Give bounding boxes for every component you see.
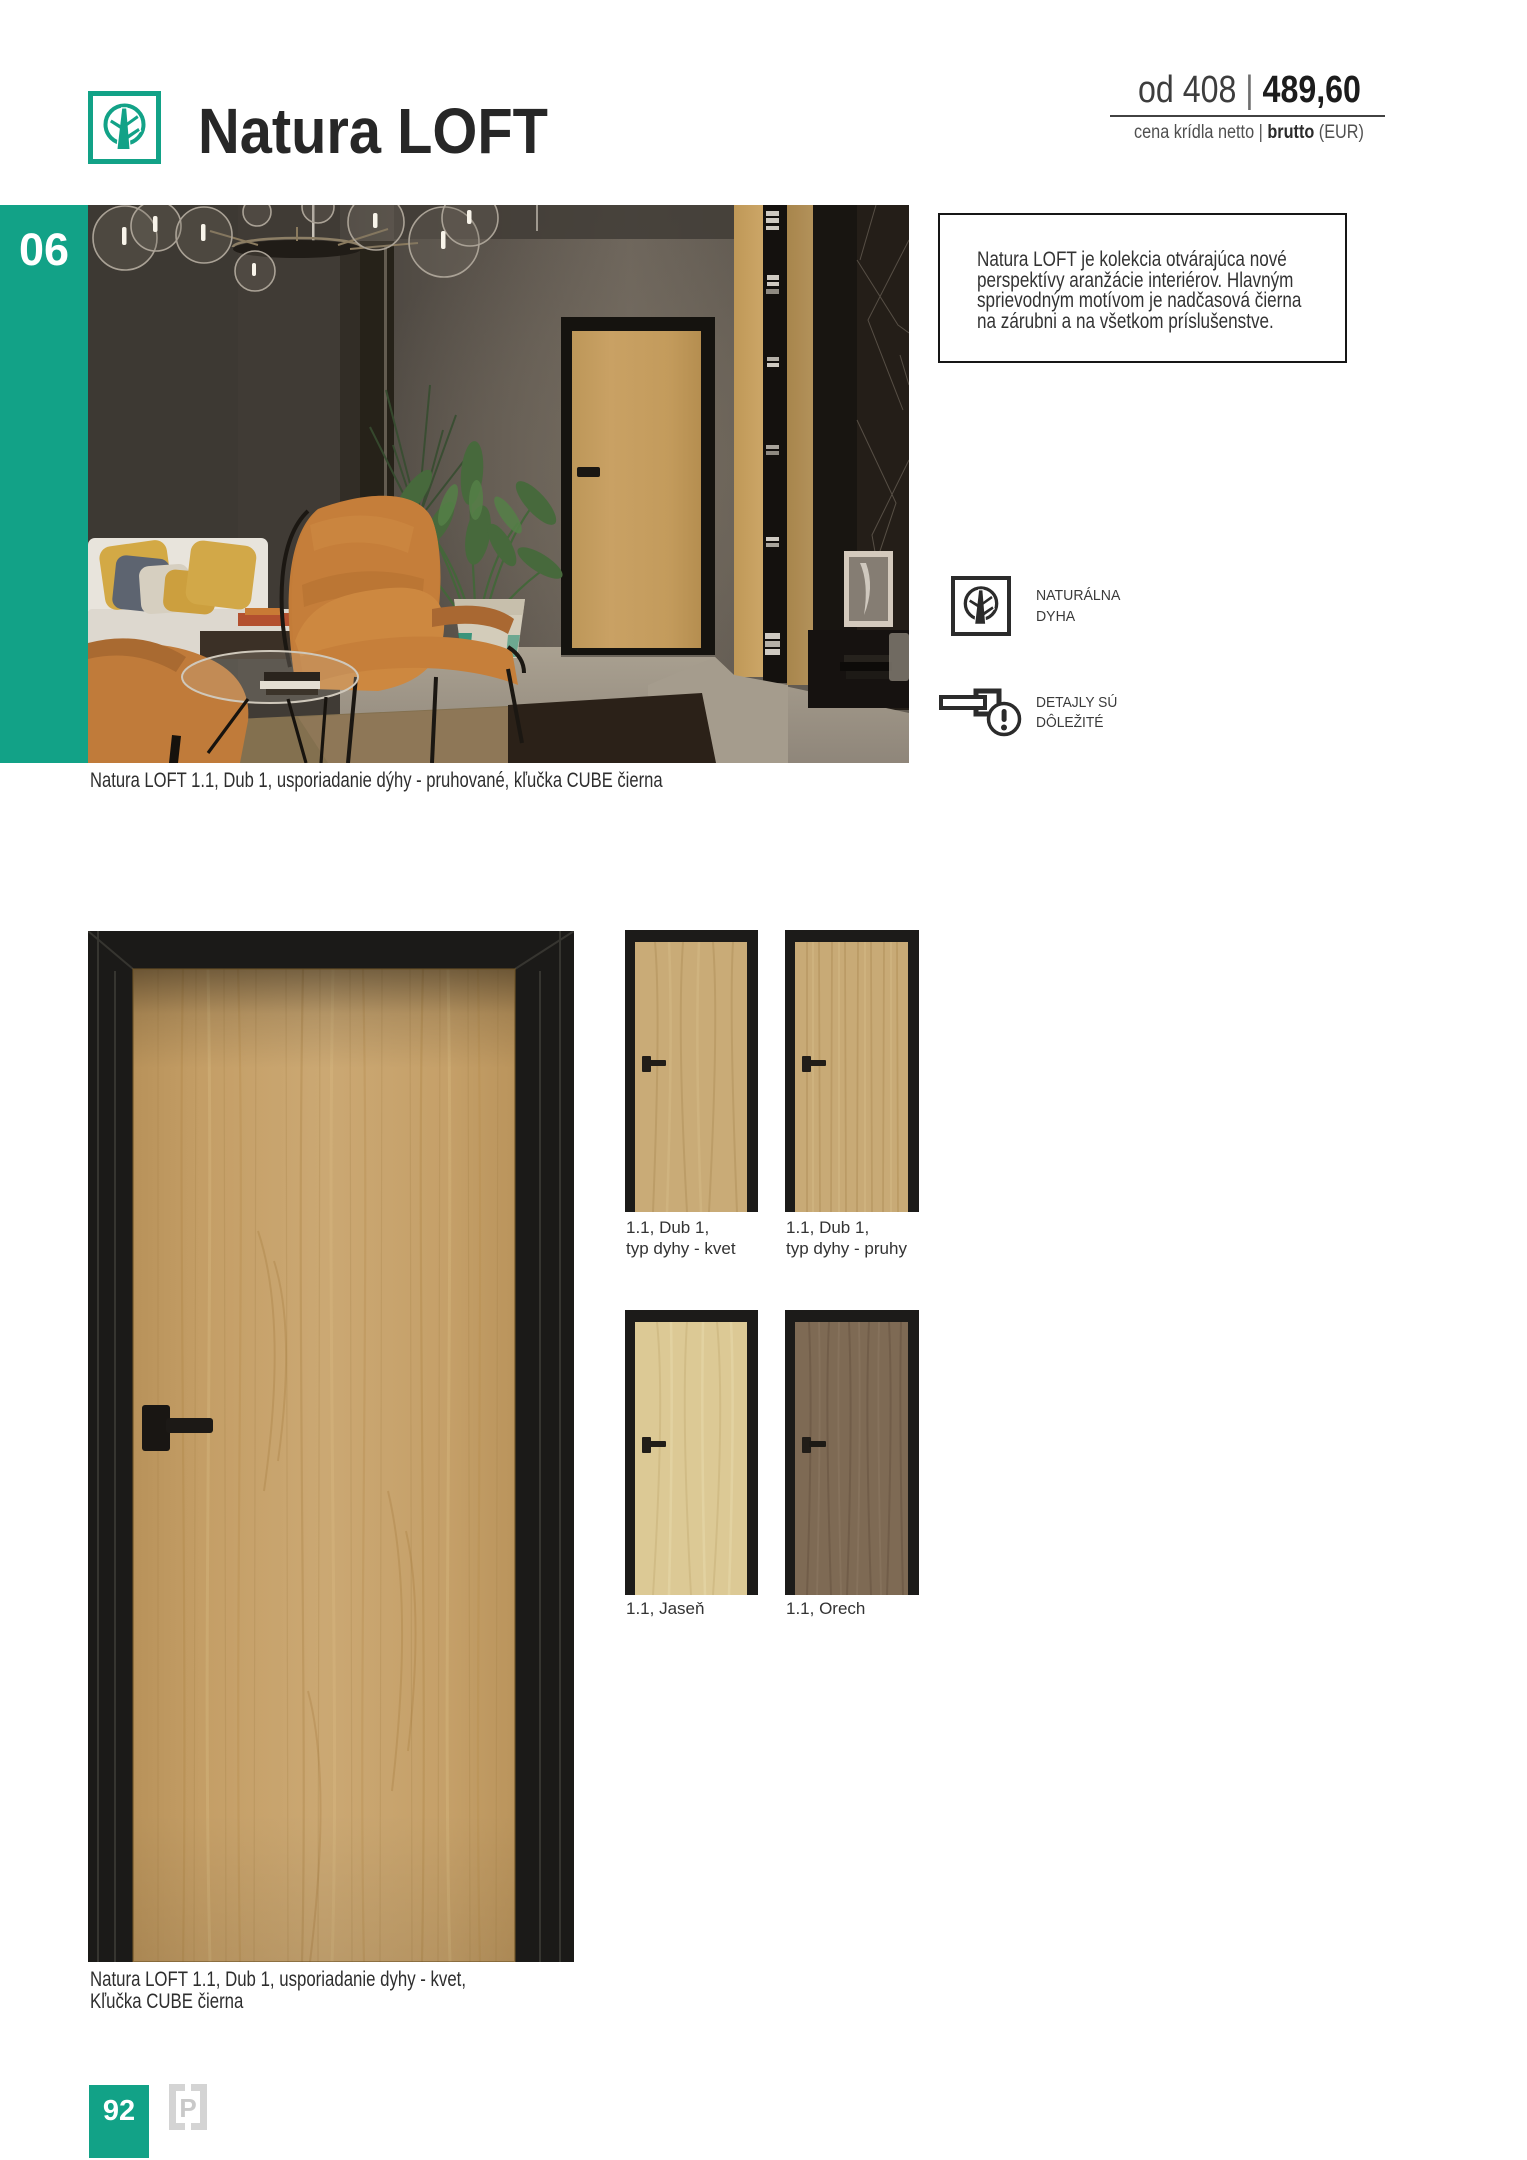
svg-text:P: P (179, 2093, 196, 2123)
